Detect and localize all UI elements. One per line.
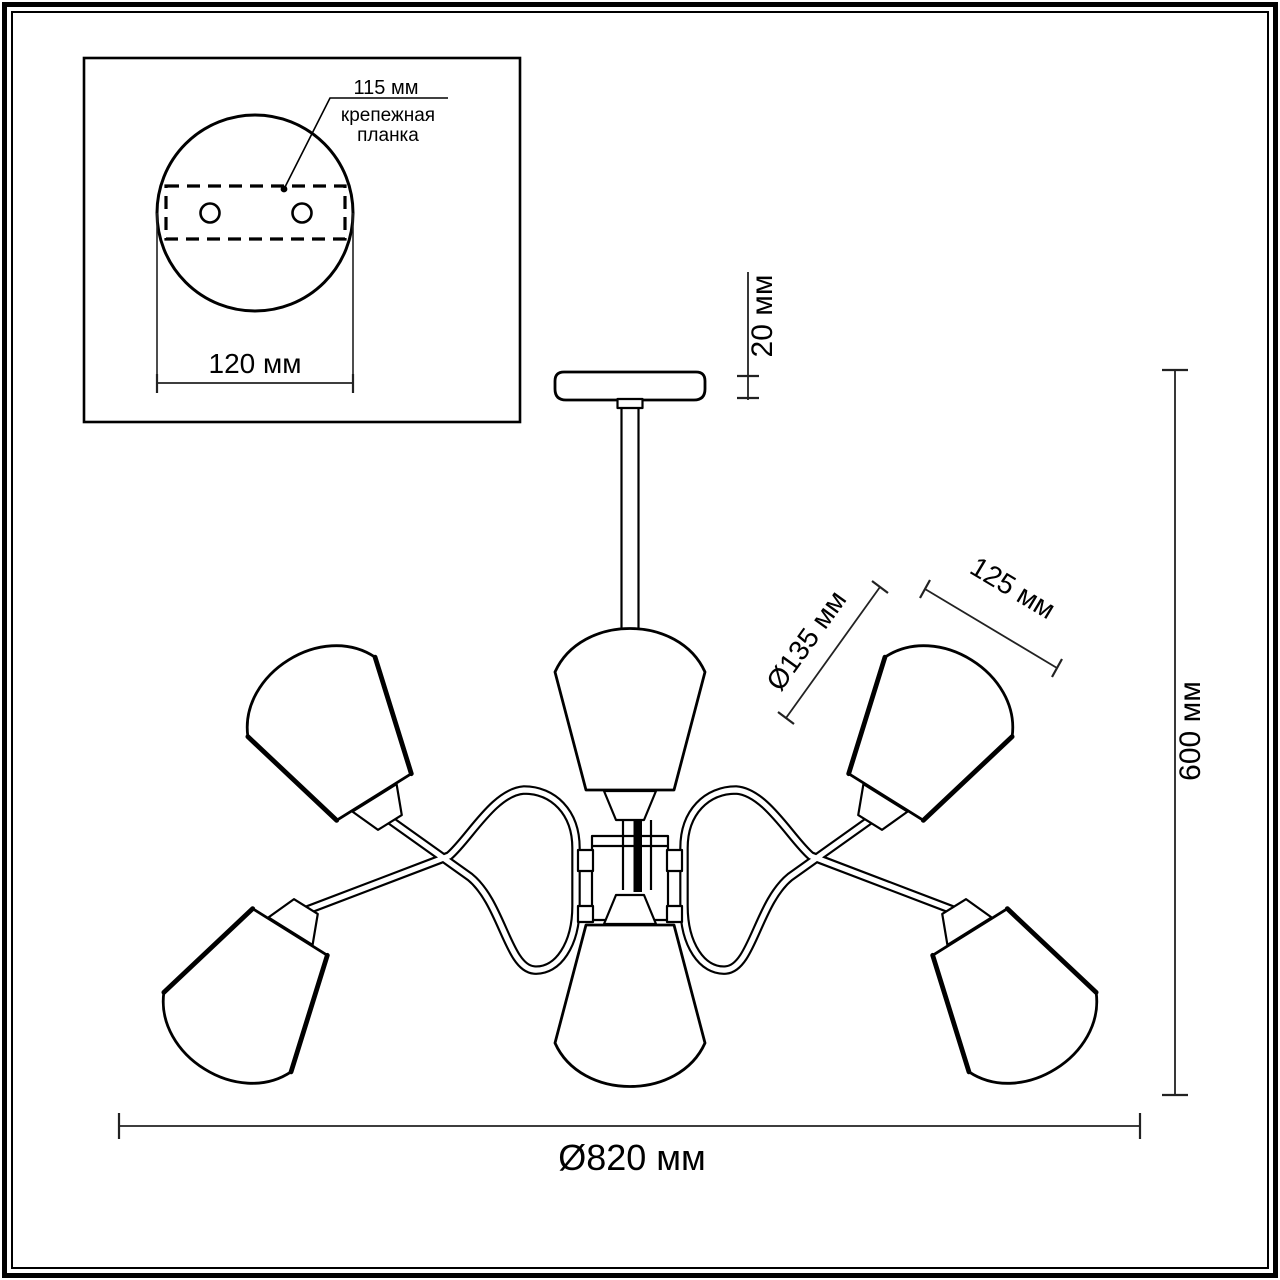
shade-body [141,892,354,1108]
label-hole-spacing: 115 мм [354,77,419,99]
hub-tab-left-lower [578,906,593,922]
label-shade-height: 125 мм [965,551,1061,625]
hub-center-bar [634,818,643,892]
shade-top-center [555,629,705,821]
hub-tab-right-lower [667,906,682,922]
dim-fixture-height: 600 мм [1162,370,1207,1095]
chandelier-dimension-drawing: 115 мм крепежная планка 120 мм [0,0,1280,1280]
ceiling-canopy [555,372,705,400]
shade-socket [604,791,656,820]
shade-body [225,620,438,836]
shade-upper-left [225,620,454,862]
label-shade-diameter: Ø135 мм [760,585,852,696]
shade-body [906,892,1119,1108]
stem-rod [622,408,639,636]
chandelier-elevation [141,372,1119,1109]
label-mounting-plate-line1: крепежная [341,105,435,126]
label-mounting-plate-line2: планка [357,125,419,146]
label-canopy-diameter: 120 мм [209,348,302,379]
dim-canopy-height: 20 мм [737,272,779,400]
shade-upper-right [806,620,1035,862]
shade-body [555,925,705,1087]
mounting-plate-inset: 115 мм крепежная планка 120 мм [84,58,520,422]
dim-fixture-diameter: Ø820 мм [119,1113,1140,1178]
shade-body [822,620,1035,836]
label-fixture-diameter: Ø820 мм [558,1137,706,1178]
hub-tab-right-upper [667,850,682,871]
hub-tab-left-upper [578,850,593,871]
shade-body [555,629,705,791]
stem-collar [618,399,643,408]
label-canopy-height: 20 мм [746,275,779,358]
label-fixture-height: 600 мм [1174,681,1207,781]
